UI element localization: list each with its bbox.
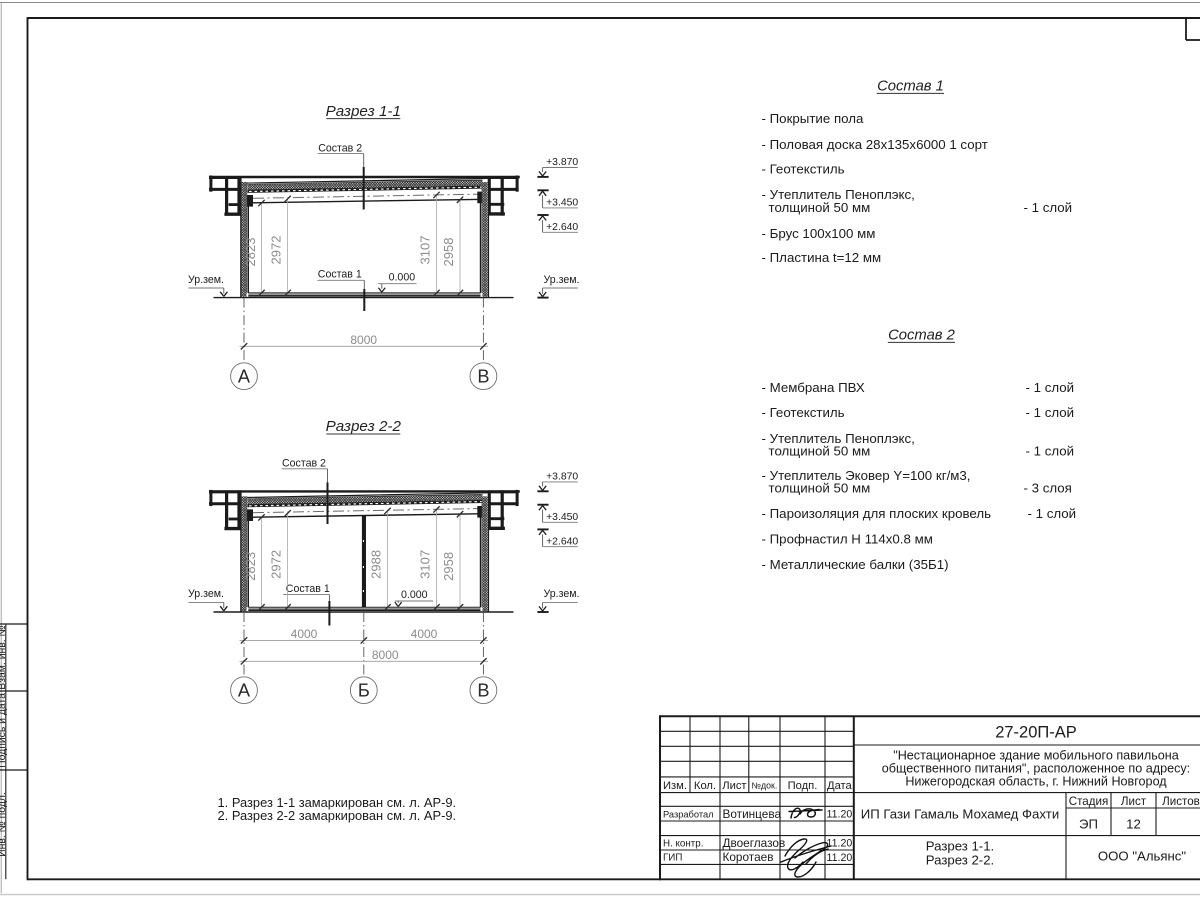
svg-text:Состав 1: Состав 1 [318,269,362,281]
svg-text:Ур.зем.: Ур.зем. [188,274,224,286]
svg-text:Листов: Листов [1162,795,1200,808]
svg-text:8000: 8000 [372,648,399,662]
svg-text:ЭП: ЭП [1079,817,1098,832]
svg-text:- Геотекстиль: - Геотекстиль [762,405,845,420]
svg-text:Разработал: Разработал [663,809,714,819]
svg-text:+3.870: +3.870 [546,471,578,482]
svg-text:А: А [238,681,251,701]
svg-text:Состав 1: Состав 1 [286,583,330,595]
svg-text:Вотинцева: Вотинцева [723,807,782,821]
svg-text:Разрез 1-1: Разрез 1-1 [326,103,401,120]
svg-text:Разрез 1-1.: Разрез 1-1. [926,839,994,854]
svg-text:В: В [477,367,489,387]
svg-text:- Пластина t=12 мм: - Пластина t=12 мм [762,250,882,265]
svg-text:- Геотекстиль: - Геотекстиль [762,162,845,177]
svg-text:Подп.: Подп. [788,780,818,792]
svg-text:Изм.: Изм. [663,780,687,792]
svg-text:12: 12 [1126,817,1141,832]
svg-text:Стадия: Стадия [1069,795,1109,808]
svg-text:2823: 2823 [243,238,258,267]
svg-text:+3.450: +3.450 [546,198,578,209]
svg-text:2. Разрез 2-2 замаркирован см.: 2. Разрез 2-2 замаркирован см. л. АР-9. [218,808,457,823]
svg-text:27-20П-АР: 27-20П-АР [995,724,1077,742]
svg-text:Лист: Лист [722,780,746,792]
svg-text:Ур.зем.: Ур.зем. [544,274,580,286]
svg-text:4000: 4000 [291,627,318,641]
svg-text:3107: 3107 [418,550,433,579]
svg-text:Кол.: Кол. [694,780,716,792]
svg-text:- 1 слой: - 1 слой [1026,380,1075,395]
svg-text:4000: 4000 [411,627,438,641]
svg-text:Дата: Дата [827,780,853,792]
svg-text:Коротаев: Коротаев [723,850,774,864]
svg-text:Разрез 2-2.: Разрез 2-2. [926,852,994,867]
svg-text:Инв. № подл.: Инв. № подл. [0,792,8,857]
svg-text:"Нестационарное здание мобильн: "Нестационарное здание мобильного павиль… [893,748,1179,762]
svg-text:№док.: №док. [752,780,778,790]
svg-text:Подпись и дата: Подпись и дата [0,693,8,768]
svg-text:- Брус 100х100 мм: - Брус 100х100 мм [762,226,876,241]
svg-text:- 1 слой: - 1 слой [1026,405,1075,420]
svg-text:- 3 слоя: - 3 слоя [1024,481,1072,496]
svg-text:3107: 3107 [418,236,433,265]
svg-text:Состав 2: Состав 2 [888,327,956,343]
svg-text:2958: 2958 [441,552,456,581]
svg-text:11.20: 11.20 [827,809,853,821]
svg-text:+2.640: +2.640 [546,222,578,233]
svg-text:0.000: 0.000 [389,272,416,284]
svg-text:- 1 слой: - 1 слой [1024,200,1073,215]
svg-text:11.20: 11.20 [827,852,853,864]
svg-text:В: В [477,681,489,701]
svg-text:Состав 2: Состав 2 [282,458,326,470]
svg-text:- Пароизоляция для плоских кро: - Пароизоляция для плоских кровель [762,506,992,521]
svg-text:- Металлические балки (35Б1): - Металлические балки (35Б1) [762,557,949,572]
svg-text:+3.450: +3.450 [546,512,578,523]
svg-text:общественного питания", распол: общественного питания", расположенное по… [882,761,1190,775]
svg-text:8000: 8000 [350,333,377,347]
svg-text:Ур.зем.: Ур.зем. [188,588,224,600]
svg-text:толщиной 50 мм: толщиной 50 мм [769,481,871,496]
svg-text:- 1 слой: - 1 слой [1028,506,1077,521]
svg-text:+2.640: +2.640 [546,536,578,547]
svg-text:2958: 2958 [441,238,456,267]
svg-text:2988: 2988 [369,550,384,579]
svg-text:2823: 2823 [243,552,258,581]
svg-text:Состав 1: Состав 1 [877,78,944,94]
svg-text:Лист: Лист [1121,795,1147,808]
svg-text:ООО "Альянс": ООО "Альянс" [1098,848,1186,863]
svg-text:Н. контр.: Н. контр. [663,838,703,849]
svg-text:0.000: 0.000 [401,589,428,601]
svg-text:+3.870: +3.870 [546,157,578,168]
svg-text:А: А [238,367,251,387]
svg-text:- Половая доска 28х135х6000 1: - Половая доска 28х135х6000 1 сорт [762,137,988,152]
svg-text:Разрез 2-2: Разрез 2-2 [326,418,402,435]
svg-text:11.20: 11.20 [827,838,853,850]
svg-text:ИП Гази Гамаль Мохамед Фахти: ИП Гази Гамаль Мохамед Фахти [861,807,1059,822]
svg-text:Двоеглазов: Двоеглазов [723,836,786,850]
svg-text:Нижегородская область, г. Нижн: Нижегородская область, г. Нижний Новгоро… [905,774,1167,788]
svg-text:2972: 2972 [269,550,284,579]
svg-text:- 1 слой: - 1 слой [1026,444,1075,459]
svg-text:ГИП: ГИП [663,853,682,864]
svg-text:Состав 2: Состав 2 [318,143,362,155]
svg-text:толщиной 50 мм: толщиной 50 мм [769,444,871,459]
svg-text:Б: Б [358,681,370,701]
svg-text:Взам. инв. №: Взам. инв. № [0,625,8,689]
svg-text:- Профнастил Н 114х0.8 мм: - Профнастил Н 114х0.8 мм [762,532,933,547]
svg-text:2972: 2972 [269,236,284,265]
svg-text:Ур.зем.: Ур.зем. [544,588,580,600]
svg-text:толщиной 50 мм: толщиной 50 мм [769,200,871,215]
svg-text:- Покрытие пола: - Покрытие пола [762,111,865,126]
svg-text:- Мембрана ПВХ: - Мембрана ПВХ [762,380,865,395]
